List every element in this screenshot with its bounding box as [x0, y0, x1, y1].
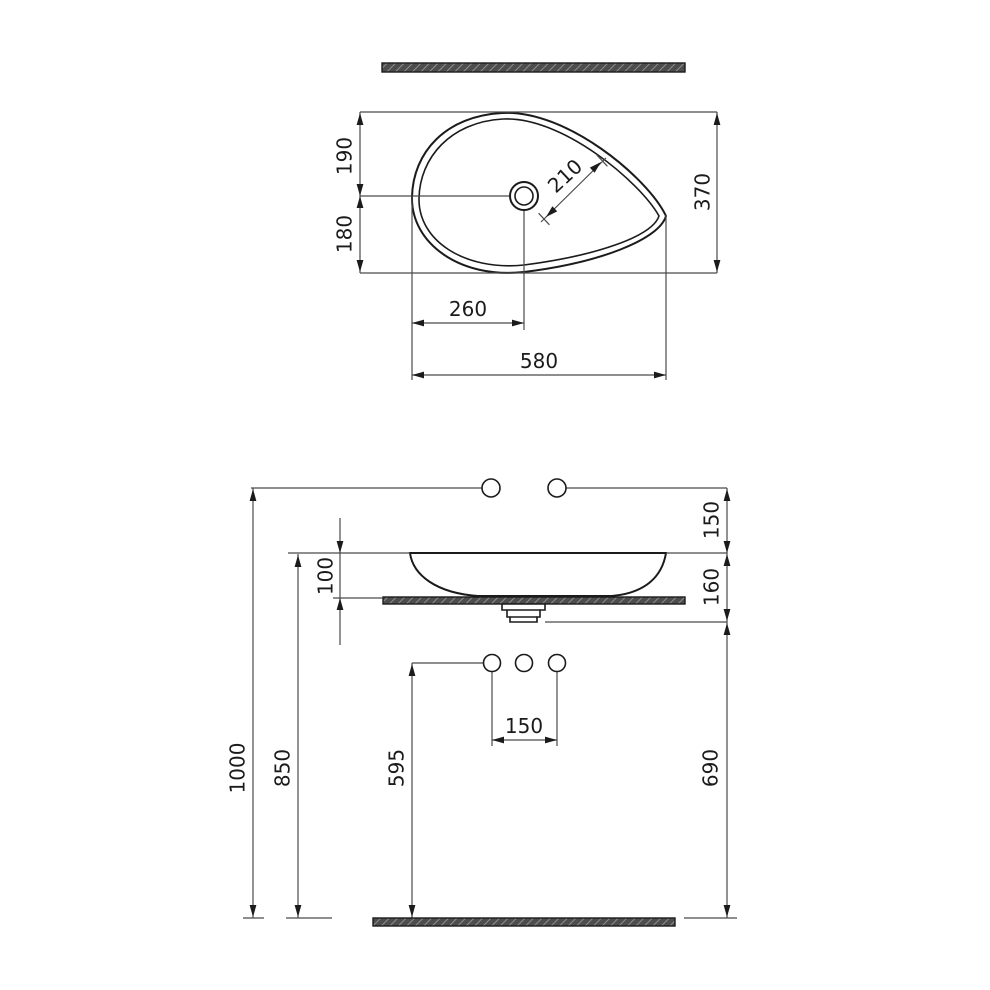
dim-label-width-total: 580	[520, 349, 558, 373]
deck-faucet-hole	[549, 655, 566, 672]
dim-arrow	[295, 555, 302, 567]
dim-label-rim-to-drain-line: 160	[700, 568, 724, 606]
front-view: 150 160 100 1000 850 595 690 150	[226, 479, 738, 926]
dim-arrow	[654, 372, 666, 379]
drain-outlet	[502, 604, 545, 622]
dim-label-offset-top: 190	[333, 137, 357, 175]
counter-section-bar	[383, 597, 685, 604]
dim-arrow	[724, 489, 731, 501]
front-view-labels: 150 160 100 1000 850 595 690 150	[226, 501, 724, 794]
dim-arrow	[357, 260, 364, 272]
dim-arrow	[357, 196, 364, 208]
dim-label-rim-height: 850	[271, 749, 295, 787]
dim-label-bowl-height: 100	[314, 557, 338, 595]
dim-label-hole-spacing: 150	[505, 714, 543, 738]
dim-arrow	[357, 184, 364, 196]
dim-arrow	[724, 609, 731, 621]
dim-arrow	[412, 320, 424, 327]
dim-arrow	[724, 541, 731, 553]
dim-arrow	[357, 113, 364, 125]
dim-label-depth-total: 370	[691, 173, 715, 211]
dim-arrow	[295, 905, 302, 917]
dim-label-rim-to-wall-holes: 150	[700, 501, 724, 539]
top-view: 190 180 370 210 260 580	[333, 63, 721, 380]
dim-arrow	[337, 541, 344, 553]
wall-faucet-hole	[482, 479, 500, 497]
faucet-hole-inner	[515, 187, 533, 205]
dim-arrow	[714, 260, 721, 272]
dim-arrow	[724, 623, 731, 635]
dim-arrow	[724, 905, 731, 917]
dim-arrow	[250, 489, 257, 501]
wall-section-bar	[382, 63, 685, 72]
bowl-profile	[410, 553, 666, 596]
dim-arrow	[724, 554, 731, 566]
dim-arrow	[250, 905, 257, 917]
dim-label-deck-holes-height: 595	[385, 749, 409, 787]
deck-faucet-hole	[484, 655, 501, 672]
dim-arrow	[714, 113, 721, 125]
dim-arrow	[492, 737, 504, 744]
dim-label-wall-holes-height: 1000	[226, 743, 250, 794]
deck-faucet-hole	[516, 655, 533, 672]
dim-arrow	[545, 737, 557, 744]
dim-label-offset-bottom: 180	[333, 215, 357, 253]
wall-faucet-hole	[548, 479, 566, 497]
dim-arrow	[409, 664, 416, 676]
dim-label-drain-line-height: 690	[699, 749, 723, 787]
washbasin-dimension-drawing: 190 180 370 210 260 580	[0, 0, 990, 990]
technical-drawing-page: 190 180 370 210 260 580	[0, 0, 990, 990]
dim-arrow	[409, 905, 416, 917]
dim-arrow	[337, 598, 344, 610]
dim-label-hole-from-left: 260	[449, 297, 487, 321]
dim-arrow	[412, 372, 424, 379]
dim-arrow	[512, 320, 524, 327]
floor-section-bar	[373, 918, 675, 926]
